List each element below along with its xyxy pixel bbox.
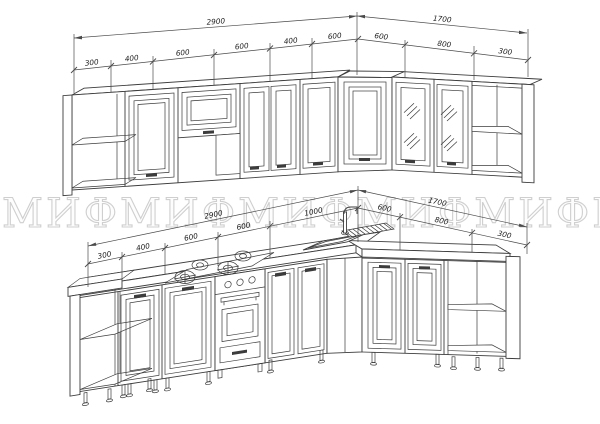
door-handle	[447, 162, 456, 165]
base-cabinets-drawing	[68, 207, 520, 408]
dim-label-top-seg: 300	[84, 57, 99, 67]
dim-label-top-seg: 400	[283, 36, 298, 46]
dim-label-top-seg: 600	[175, 47, 190, 57]
door-handle	[379, 265, 390, 268]
oven	[215, 269, 265, 379]
door-handle	[359, 158, 370, 161]
dim-label-top-seg: 600	[234, 41, 249, 51]
dimension-line-segments	[74, 39, 358, 70]
door-handle	[405, 160, 415, 164]
dim-label-bottom-overall-left: 2900	[203, 208, 223, 221]
dim-label-bottom-overall-right: 1700	[427, 195, 447, 208]
door-handle	[277, 164, 286, 168]
hood-duct-box	[216, 134, 240, 176]
dim-label-top-seg: 600	[327, 31, 342, 41]
dim-label-top-seg: 400	[124, 53, 139, 63]
wall-cabinets-drawing	[63, 70, 542, 196]
base-corner-cabinet	[327, 245, 362, 353]
dim-label-top-seg: 300	[498, 46, 513, 57]
dimension-line-overall	[88, 190, 358, 246]
kitchen-technical-drawing: 2900 1700 300 400 600 600 400 600 600 80…	[0, 0, 600, 424]
dim-label-bottom-seg: 600	[377, 202, 393, 214]
dim-label-top-overall-left: 2900	[206, 16, 226, 26]
door-handle	[419, 266, 430, 269]
door-handle	[250, 166, 259, 170]
dim-label-top-seg: 800	[437, 39, 452, 50]
dim-label-top-overall-right: 1700	[433, 14, 453, 25]
dim-label-top-seg: 600	[374, 31, 389, 42]
kitchen-drawing-page: МИФ МИФ МИФ МИФ МИФ МИФ	[0, 0, 600, 424]
